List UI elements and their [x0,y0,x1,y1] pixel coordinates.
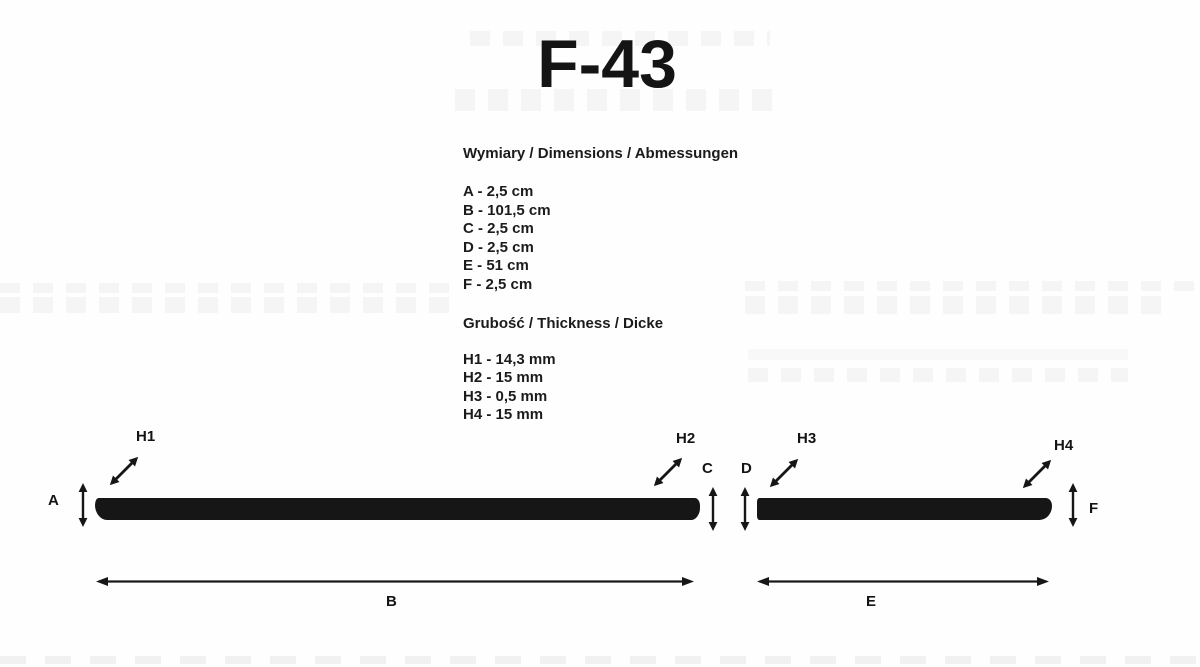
label-h1: H1 [136,429,155,444]
measure-arrow-d [738,487,752,531]
length-arrow-b [96,575,694,588]
molding-strip-right [757,498,1052,520]
length-arrow-e [757,575,1049,588]
molding-diagram: A H1 H2 C D H3 H4 F B E [0,0,1200,667]
measure-arrow-c [706,487,720,531]
label-c: C [702,461,713,476]
label-h3: H3 [797,431,816,446]
thickness-arrow-h4 [1018,455,1056,493]
thickness-arrow-h1 [105,452,143,490]
thickness-arrow-h3 [765,454,803,492]
thickness-arrow-h2 [649,453,687,491]
label-b: B [386,594,397,609]
label-h4: H4 [1054,438,1073,453]
label-h2: H2 [676,431,695,446]
molding-strip-left [95,498,700,520]
measure-arrow-f [1066,483,1080,527]
label-d: D [741,461,752,476]
measure-arrow-a [76,483,90,527]
label-f: F [1089,501,1098,516]
spec-sheet-page: F-43 Wymiary / Dimensions / Abmessungen … [0,0,1200,667]
label-e: E [866,594,876,609]
label-a: A [48,493,59,508]
